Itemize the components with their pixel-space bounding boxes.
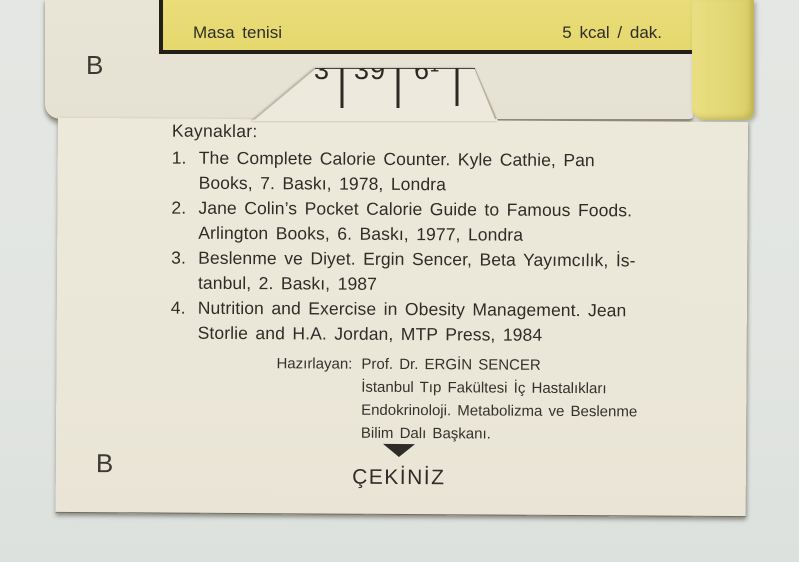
reference-line: tanbul, 2. Baskı, 1987 [198,273,377,294]
author-name: Prof. Dr. ERGİN SENCER [361,356,540,374]
scale-tab: 3 39 6¹ [252,61,498,121]
yellow-card-right-edge [692,0,754,120]
reference-item: 3. Beslenme ve Diyet. Ergin Sencer, Beta… [171,246,716,299]
reference-item: 2. Jane Colin’s Pocket Calorie Guide to … [171,196,716,249]
author-title: Bilim Dalı Başkanı. [361,425,491,443]
reference-number: 2. [171,196,198,246]
reference-line: Nutrition and Exercise in Obesity Manage… [198,298,627,321]
activity-name: Masa tenisi [193,23,282,43]
reference-text: Beslenme ve Diyet. Ergin Sencer, Beta Ya… [198,246,636,299]
reference-number: 3. [171,246,198,296]
reference-line: Books, 7. Baskı, 1978, Londra [199,173,446,195]
references-heading: Kaynaklar: [172,121,258,143]
author-affiliation: İstanbul Tıp Fakültesi İç Hastalıkları [361,379,606,397]
reference-line: The Complete Calorie Counter. Kyle Cathi… [199,148,595,170]
reference-number: 1. [172,146,199,196]
activity-rate: 5 kcal / dak. [562,23,662,43]
sleeve-side-label: B [86,50,104,81]
references-card: Kaynaklar: 1. The Complete Calorie Count… [56,118,748,517]
reference-text: Nutrition and Exercise in Obesity Manage… [198,296,627,349]
reference-text: The Complete Calorie Counter. Kyle Cathi… [199,146,595,198]
author-block: Hazırlayan: Prof. Dr. ERGİN SENCER İstan… [276,352,638,446]
reference-item: 1. The Complete Calorie Counter. Kyle Ca… [172,146,717,199]
author-affiliation: Endokrinoloji. Metabolizma ve Beslenme [361,402,637,421]
references-list: 1. The Complete Calorie Counter. Kyle Ca… [171,146,717,349]
activity-rate-card: Masa tenisi 5 kcal / dak. [159,0,716,54]
reference-line: Beslenme ve Diyet. Ergin Sencer, Beta Ya… [198,248,636,271]
reference-item: 4. Nutrition and Exercise in Obesity Man… [171,296,716,349]
card-side-label: B [96,448,114,479]
calorie-slide-card-photo: B Masa tenisi 5 kcal / dak. 3 39 6¹ Kayn… [0,0,799,562]
author-details: Prof. Dr. ERGİN SENCER İstanbul Tıp Fakü… [361,353,638,447]
scale-tab-wrap: 3 39 6¹ [252,61,498,121]
reference-line: Storlie and H.A. Jordan, MTP Press, 1984 [198,323,543,345]
pull-label: ÇEKİNİZ [352,466,445,491]
reference-number: 4. [171,296,198,346]
pull-down-arrow-icon [383,444,415,457]
author-label: Hazırlayan: [276,352,352,444]
reference-text: Jane Colin’s Pocket Calorie Guide to Fam… [198,196,632,249]
reference-line: Jane Colin’s Pocket Calorie Guide to Fam… [198,198,632,221]
pull-instruction: ÇEKİNİZ [314,443,484,490]
reference-line: Arlington Books, 6. Baskı, 1977, Londra [198,223,523,245]
